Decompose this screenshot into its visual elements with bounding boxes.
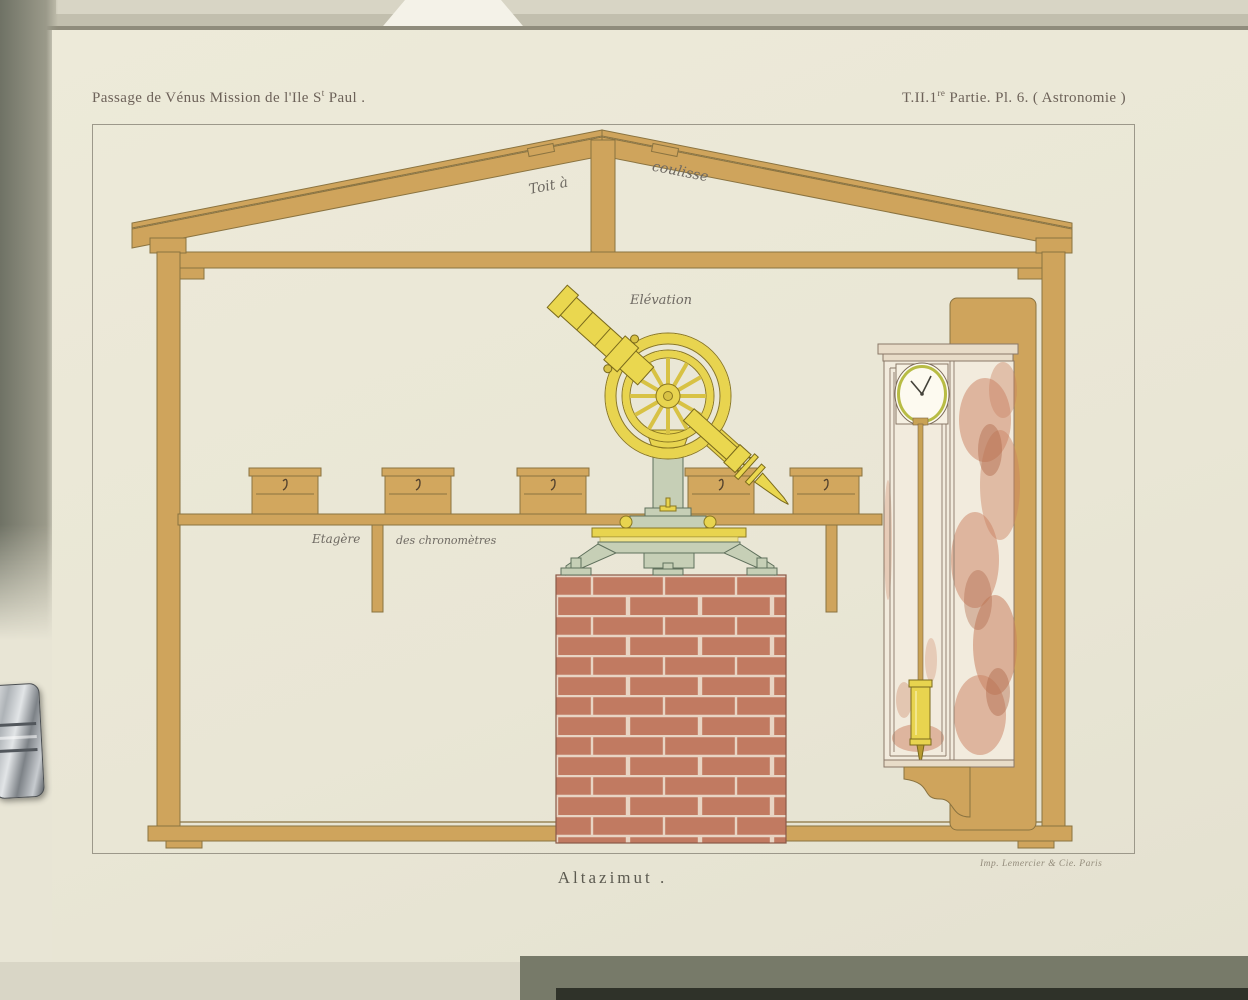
footing-right <box>1018 841 1054 848</box>
shelf-support-right <box>826 525 837 612</box>
king-post <box>591 140 615 254</box>
shelf-plank <box>178 514 882 525</box>
shelf-support-left <box>372 525 383 612</box>
label-shelf-left: Etagère <box>311 532 360 546</box>
table-shadow <box>556 988 1248 1000</box>
sliding-roof-board-right <box>602 130 1072 228</box>
observatory-cross-section-drawing: Toit à coulisse Elévation Etagère des ch… <box>0 0 1248 1000</box>
wall-post-right <box>1042 252 1065 828</box>
chronometer-box <box>790 468 862 514</box>
clock-cornice <box>878 344 1018 354</box>
clock-face <box>895 363 949 425</box>
footing-left <box>166 841 202 848</box>
wall-post-left <box>157 252 180 828</box>
leveling-foot <box>653 569 683 575</box>
brick-pier <box>556 575 786 843</box>
pendulum-rod <box>918 424 923 682</box>
printer-imprint: Imp. Lemercier & Cie. Paris <box>980 859 1102 869</box>
label-elevation: Elévation <box>629 293 692 308</box>
astronomical-clock <box>878 344 1020 767</box>
tie-beam <box>158 252 1064 268</box>
counterweight-spear <box>755 473 793 509</box>
label-roof-left: Toit à <box>527 175 569 198</box>
stand-platform <box>598 542 740 553</box>
chronometer-box <box>517 468 589 514</box>
leveling-foot <box>561 568 591 575</box>
wall-cap-left <box>150 238 186 253</box>
azimuth-circle-bar <box>592 528 746 537</box>
leveling-foot <box>747 568 777 575</box>
chronometer-box <box>685 468 757 514</box>
binder-clip <box>0 683 45 799</box>
wall-cap-right <box>1036 238 1072 253</box>
beam-bracket-right <box>1018 268 1042 279</box>
label-shelf-right: des chronomètres <box>396 534 497 547</box>
chronometer-box <box>382 468 454 514</box>
azimuth-mount <box>630 516 706 528</box>
corbel-bracket <box>904 767 970 817</box>
page-bottom-edge <box>0 962 540 1000</box>
sliding-roof-board-left <box>132 130 602 228</box>
photo-background: Passage de Vénus Mission de l'Ile St Pau… <box>0 0 1248 1000</box>
beam-bracket-left <box>180 268 204 279</box>
clock-base-molding <box>884 760 1014 767</box>
chronometer-box <box>249 468 321 514</box>
plate-caption: Altazimut . <box>92 868 1133 888</box>
